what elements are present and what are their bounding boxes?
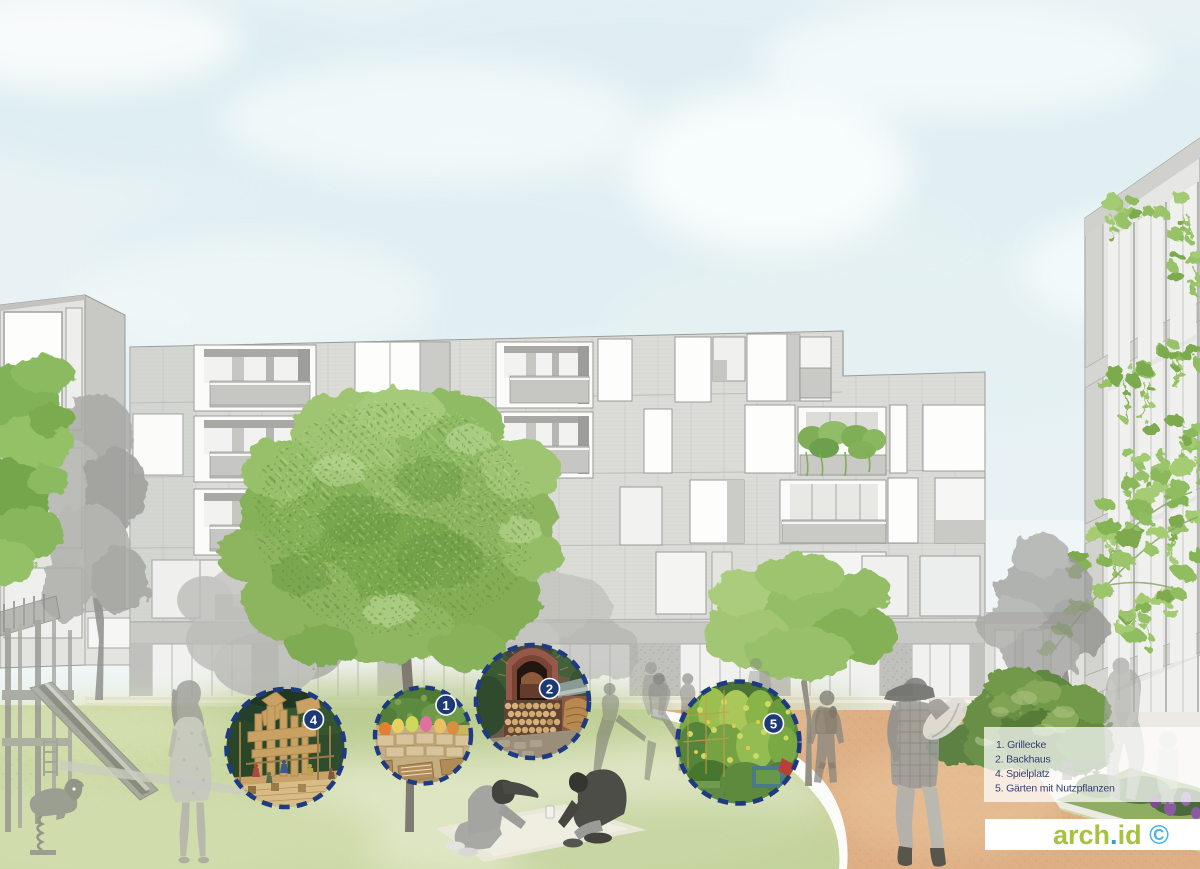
svg-text:2: 2	[546, 681, 553, 696]
svg-text:5: 5	[770, 716, 777, 731]
svg-text:4: 4	[310, 712, 318, 727]
svg-text:2. Backhaus: 2. Backhaus	[995, 754, 1051, 766]
svg-text:1: 1	[442, 698, 449, 713]
svg-text:1. Grillecke: 1. Grillecke	[996, 739, 1046, 751]
svg-text:4. Spielplatz: 4. Spielplatz	[995, 768, 1050, 780]
svg-text:arch.id ©: arch.id ©	[1053, 820, 1169, 850]
svg-text:5. Gärten mit Nutzpflanzen: 5. Gärten mit Nutzpflanzen	[995, 783, 1115, 795]
